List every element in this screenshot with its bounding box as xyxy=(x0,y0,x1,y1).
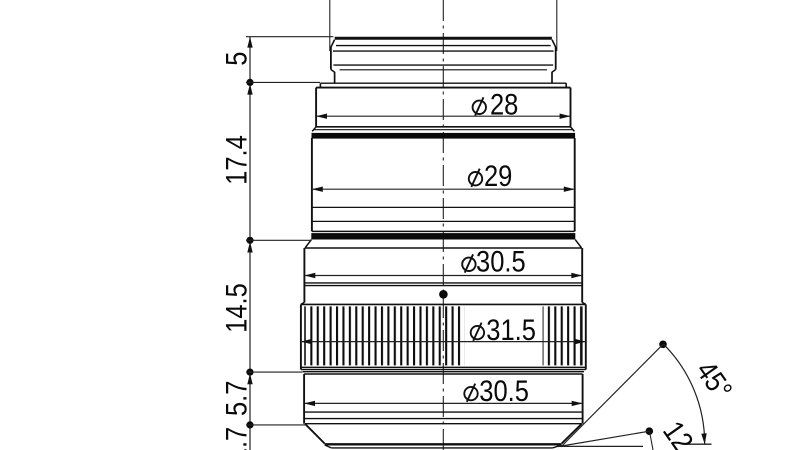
svg-text:17.4: 17.4 xyxy=(220,135,253,185)
svg-text:30.5: 30.5 xyxy=(479,374,529,407)
svg-text:1.7: 1.7 xyxy=(220,427,253,450)
svg-text:5.7: 5.7 xyxy=(220,381,253,416)
svg-text:29: 29 xyxy=(484,159,512,192)
svg-text:5: 5 xyxy=(220,52,253,66)
svg-text:14.5: 14.5 xyxy=(220,283,253,333)
svg-text:28: 28 xyxy=(490,88,518,121)
svg-text:30.5: 30.5 xyxy=(476,245,526,278)
svg-text:31.5: 31.5 xyxy=(486,313,536,346)
